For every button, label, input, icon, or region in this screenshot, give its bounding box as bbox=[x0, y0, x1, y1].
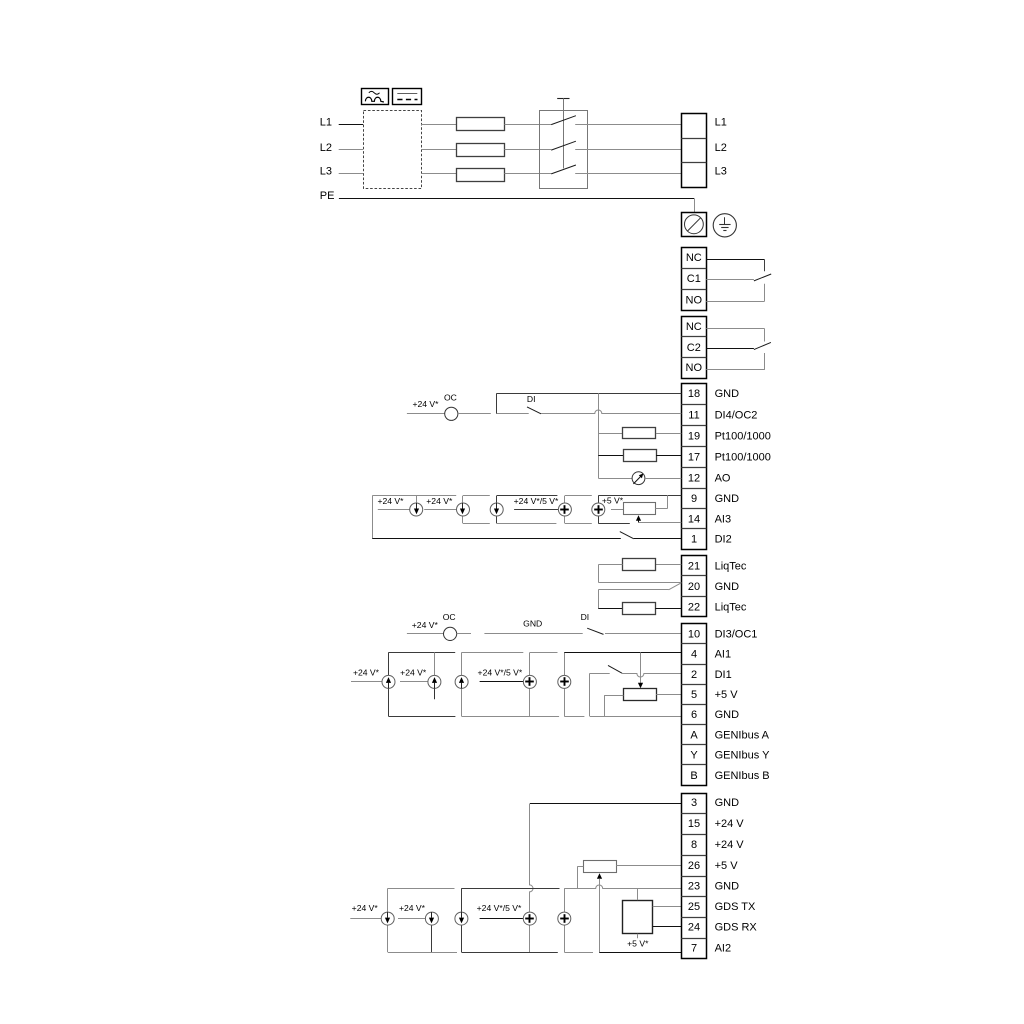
svg-text:18: 18 bbox=[688, 388, 700, 400]
svg-text:24: 24 bbox=[688, 921, 700, 933]
svg-text:+5 V: +5 V bbox=[715, 689, 739, 701]
svg-text:+24 V*: +24 V* bbox=[412, 620, 439, 630]
svg-text:+24 V*: +24 V* bbox=[353, 668, 380, 678]
svg-text:19: 19 bbox=[688, 431, 700, 443]
svg-text:LiqTec: LiqTec bbox=[715, 560, 747, 572]
svg-text:DI4/OC2: DI4/OC2 bbox=[715, 409, 758, 421]
svg-text:GENIbus Y: GENIbus Y bbox=[715, 749, 770, 761]
svg-text:L1: L1 bbox=[320, 116, 332, 128]
svg-text:+5 V*: +5 V* bbox=[627, 938, 649, 948]
svg-text:DI: DI bbox=[527, 394, 536, 404]
svg-text:+24 V: +24 V bbox=[715, 818, 745, 830]
svg-text:AO: AO bbox=[715, 472, 731, 484]
svg-text:GND: GND bbox=[715, 388, 740, 400]
svg-text:L2: L2 bbox=[715, 142, 727, 154]
svg-text:GND: GND bbox=[715, 880, 740, 892]
svg-text:+24 V*: +24 V* bbox=[400, 668, 427, 678]
svg-text:C1: C1 bbox=[687, 273, 701, 285]
svg-text:2: 2 bbox=[691, 669, 697, 681]
svg-text:+24 V*: +24 V* bbox=[352, 903, 379, 913]
svg-text:L1: L1 bbox=[715, 116, 727, 128]
svg-text:Pt100/1000: Pt100/1000 bbox=[715, 431, 771, 443]
svg-text:GENIbus A: GENIbus A bbox=[715, 730, 770, 742]
svg-text:25: 25 bbox=[688, 901, 700, 913]
svg-text:AI3: AI3 bbox=[715, 513, 732, 525]
svg-text:8: 8 bbox=[691, 839, 697, 851]
svg-text:GND: GND bbox=[715, 581, 740, 593]
svg-text:A: A bbox=[690, 730, 698, 742]
svg-text:NO: NO bbox=[686, 295, 703, 307]
svg-text:GND: GND bbox=[715, 709, 740, 721]
svg-text:C2: C2 bbox=[687, 342, 701, 354]
svg-text:L3: L3 bbox=[715, 166, 727, 178]
svg-text:4: 4 bbox=[691, 649, 697, 661]
svg-text:+24 V*: +24 V* bbox=[426, 496, 453, 506]
svg-text:+24 V*: +24 V* bbox=[399, 903, 426, 913]
svg-text:+24 V*/5 V*: +24 V*/5 V* bbox=[478, 668, 523, 678]
svg-text:14: 14 bbox=[688, 513, 700, 525]
svg-text:+5 V*: +5 V* bbox=[602, 496, 624, 506]
svg-text:AI2: AI2 bbox=[715, 942, 732, 954]
svg-text:Pt100/1000: Pt100/1000 bbox=[715, 452, 771, 464]
svg-text:+5 V: +5 V bbox=[715, 860, 739, 872]
svg-text:OC: OC bbox=[443, 612, 456, 622]
svg-text:NC: NC bbox=[686, 252, 702, 264]
svg-text:OC: OC bbox=[444, 393, 457, 403]
svg-text:21: 21 bbox=[688, 560, 700, 572]
svg-text:+24 V*/5 V*: +24 V*/5 V* bbox=[477, 903, 522, 913]
svg-text:26: 26 bbox=[688, 860, 700, 872]
svg-text:NO: NO bbox=[686, 362, 703, 374]
svg-text:17: 17 bbox=[688, 452, 700, 464]
svg-text:1: 1 bbox=[691, 534, 697, 546]
svg-text:AI1: AI1 bbox=[715, 649, 732, 661]
svg-text:LiqTec: LiqTec bbox=[715, 601, 747, 613]
svg-text:9: 9 bbox=[691, 493, 697, 505]
svg-text:+24 V*/5 V*: +24 V*/5 V* bbox=[514, 496, 559, 506]
svg-text:GND: GND bbox=[523, 619, 542, 629]
svg-text:10: 10 bbox=[688, 629, 700, 641]
svg-text:GENIbus B: GENIbus B bbox=[715, 770, 770, 782]
svg-text:GDS TX: GDS TX bbox=[715, 901, 756, 913]
svg-text:GND: GND bbox=[715, 493, 740, 505]
svg-text:L3: L3 bbox=[320, 166, 332, 178]
svg-text:GDS RX: GDS RX bbox=[715, 921, 758, 933]
svg-text:L2: L2 bbox=[320, 142, 332, 154]
svg-text:Y: Y bbox=[690, 749, 698, 761]
svg-text:PE: PE bbox=[320, 190, 335, 202]
svg-text:B: B bbox=[690, 770, 697, 782]
svg-text:+24 V*: +24 V* bbox=[377, 496, 404, 506]
svg-text:3: 3 bbox=[691, 797, 697, 809]
svg-text:6: 6 bbox=[691, 709, 697, 721]
svg-text:GND: GND bbox=[715, 797, 740, 809]
svg-text:5: 5 bbox=[691, 689, 697, 701]
svg-text:12: 12 bbox=[688, 472, 700, 484]
svg-text:DI3/OC1: DI3/OC1 bbox=[715, 629, 758, 641]
svg-text:20: 20 bbox=[688, 581, 700, 593]
svg-text:+24 V*: +24 V* bbox=[412, 399, 439, 409]
svg-text:DI2: DI2 bbox=[715, 534, 732, 546]
svg-text:22: 22 bbox=[688, 601, 700, 613]
svg-text:7: 7 bbox=[691, 942, 697, 954]
svg-text:15: 15 bbox=[688, 818, 700, 830]
svg-text:DI1: DI1 bbox=[715, 669, 732, 681]
svg-text:NC: NC bbox=[686, 321, 702, 333]
svg-text:23: 23 bbox=[688, 880, 700, 892]
svg-text:+24 V: +24 V bbox=[715, 839, 745, 851]
svg-text:DI: DI bbox=[581, 612, 590, 622]
svg-text:11: 11 bbox=[688, 409, 699, 421]
